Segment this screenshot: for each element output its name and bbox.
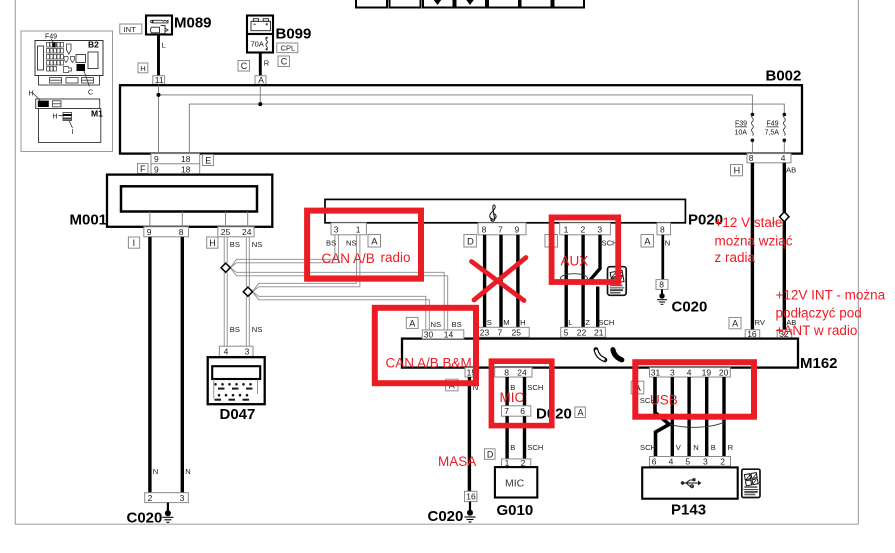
svg-text:NS: NS: [431, 320, 442, 329]
svg-text:NS: NS: [346, 238, 357, 247]
svg-text:AUX: AUX: [561, 254, 589, 269]
svg-text:8: 8: [482, 224, 487, 234]
svg-text:C: C: [281, 57, 288, 67]
svg-text:30: 30: [424, 329, 434, 339]
svg-text:podłączyć pod: podłączyć pod: [776, 306, 862, 321]
svg-text:A: A: [371, 236, 378, 247]
svg-text:D: D: [487, 449, 494, 459]
svg-text:N: N: [665, 238, 670, 247]
svg-text:+12V INT - można: +12V INT - można: [776, 288, 886, 303]
svg-text:5: 5: [564, 328, 569, 338]
svg-text:C020: C020: [672, 299, 708, 316]
svg-text:7: 7: [498, 224, 503, 234]
svg-text:BS: BS: [326, 238, 336, 247]
svg-text:14: 14: [444, 329, 454, 339]
svg-text:8: 8: [659, 280, 664, 290]
svg-text:R: R: [264, 59, 270, 68]
svg-text:L: L: [162, 41, 166, 50]
svg-text:B2: B2: [88, 40, 99, 50]
svg-text:8: 8: [660, 224, 665, 234]
svg-text:3: 3: [180, 493, 185, 503]
svg-text:BS: BS: [230, 240, 240, 249]
svg-text:NS: NS: [252, 240, 263, 249]
svg-text:C: C: [88, 90, 93, 97]
svg-text:4: 4: [224, 347, 229, 357]
svg-text:MIC: MIC: [505, 478, 525, 490]
svg-text:A: A: [258, 75, 264, 85]
svg-text:M1: M1: [91, 109, 103, 119]
svg-text:C: C: [241, 61, 248, 71]
svg-text:31: 31: [651, 367, 661, 377]
svg-text:H: H: [140, 64, 145, 73]
svg-text:B: B: [510, 443, 515, 452]
svg-text:18: 18: [181, 154, 191, 164]
svg-text:CPL: CPL: [281, 44, 296, 53]
svg-text:21: 21: [594, 328, 604, 338]
svg-text:4: 4: [781, 153, 786, 163]
svg-text:SCH: SCH: [598, 318, 614, 327]
svg-text:+ANT w radio: +ANT w radio: [776, 323, 858, 338]
svg-text:22: 22: [577, 328, 587, 338]
svg-text:SCH: SCH: [527, 443, 543, 452]
svg-text:BS: BS: [452, 320, 462, 329]
svg-text:N: N: [153, 467, 158, 476]
svg-text:H: H: [29, 91, 34, 98]
svg-text:18: 18: [181, 164, 191, 174]
svg-text:11: 11: [155, 75, 164, 85]
svg-text:E: E: [205, 155, 211, 165]
svg-text:9: 9: [515, 224, 520, 234]
svg-text:3: 3: [703, 456, 708, 466]
svg-text:I: I: [72, 129, 74, 136]
svg-text:70A: 70A: [251, 39, 264, 48]
svg-text:M162: M162: [800, 355, 838, 372]
svg-text:4: 4: [669, 456, 674, 466]
svg-text:F: F: [140, 164, 146, 174]
svg-text:6: 6: [652, 456, 657, 466]
svg-text:8: 8: [504, 367, 509, 377]
svg-text:1: 1: [356, 224, 361, 234]
svg-text:I: I: [133, 238, 136, 248]
svg-text:+12 V stałe: +12 V stałe: [715, 215, 783, 230]
svg-text:9: 9: [154, 164, 159, 174]
svg-text:MIC: MIC: [500, 390, 525, 405]
svg-text:2: 2: [581, 224, 586, 234]
svg-text:A: A: [732, 319, 738, 329]
svg-text:M: M: [503, 318, 509, 327]
svg-text:NS: NS: [252, 325, 263, 334]
svg-text:2: 2: [720, 456, 725, 466]
svg-text:CAN A/B B&M: CAN A/B B&M: [386, 356, 472, 371]
svg-text:A: A: [578, 408, 584, 418]
svg-text:SCH: SCH: [640, 443, 656, 452]
svg-text:RV: RV: [755, 318, 766, 327]
svg-text:CAN A/B: CAN A/B: [322, 251, 375, 266]
svg-text:7: 7: [504, 406, 509, 416]
svg-text:H: H: [209, 238, 216, 248]
svg-text:D: D: [467, 236, 474, 247]
svg-text:B099: B099: [276, 26, 312, 43]
svg-text:20: 20: [719, 367, 729, 377]
svg-text:USB: USB: [650, 393, 678, 408]
svg-text:4: 4: [687, 367, 692, 377]
svg-text:3: 3: [245, 347, 250, 357]
svg-text:H: H: [53, 114, 58, 121]
svg-text:radio: radio: [381, 250, 411, 265]
svg-text:SCH: SCH: [602, 238, 618, 247]
svg-text:Z: Z: [585, 318, 590, 327]
svg-text:25: 25: [512, 328, 522, 338]
svg-text:R: R: [728, 443, 734, 452]
svg-text:16: 16: [466, 492, 476, 502]
svg-text:F49: F49: [767, 121, 779, 128]
svg-text:SCH: SCH: [527, 383, 543, 392]
svg-text:B002: B002: [766, 68, 802, 85]
svg-text:z radia: z radia: [715, 250, 756, 265]
svg-text:24: 24: [242, 227, 252, 237]
svg-text:P143: P143: [671, 502, 706, 519]
svg-text:19: 19: [702, 367, 712, 377]
svg-text:25: 25: [221, 227, 231, 237]
svg-text:G010: G010: [497, 502, 534, 519]
svg-text:9: 9: [154, 154, 159, 164]
svg-text:6: 6: [520, 406, 525, 416]
svg-text:3: 3: [334, 224, 339, 234]
svg-text:10A: 10A: [735, 130, 748, 137]
svg-text:23: 23: [480, 328, 490, 338]
svg-text:BS: BS: [230, 325, 240, 334]
svg-text:C020: C020: [428, 508, 464, 525]
svg-text:C020: C020: [127, 510, 163, 527]
svg-text:9: 9: [147, 227, 152, 237]
svg-text:H: H: [520, 318, 525, 327]
svg-text:B: B: [711, 443, 716, 452]
svg-text:N: N: [693, 443, 698, 452]
svg-text:7: 7: [498, 328, 503, 338]
svg-text:3: 3: [670, 367, 675, 377]
svg-text:N: N: [185, 467, 190, 476]
svg-text:A: A: [644, 236, 651, 247]
svg-text:S: S: [487, 318, 492, 327]
svg-text:D047: D047: [220, 406, 256, 423]
svg-text:1: 1: [564, 224, 569, 234]
svg-text:INT: INT: [124, 25, 137, 34]
svg-text:3: 3: [597, 224, 602, 234]
svg-text:M001: M001: [70, 212, 108, 229]
svg-text:można wziąć: można wziąć: [715, 234, 793, 249]
svg-text:M089: M089: [174, 15, 212, 32]
svg-text:F39: F39: [735, 121, 747, 128]
svg-text:AB: AB: [786, 166, 796, 175]
svg-text:7,5A: 7,5A: [765, 130, 780, 137]
svg-text:5: 5: [685, 456, 690, 466]
svg-text:8: 8: [749, 153, 754, 163]
svg-text:8: 8: [179, 227, 184, 237]
svg-text:A: A: [409, 318, 415, 328]
svg-text:24: 24: [517, 367, 527, 377]
svg-text:MASA: MASA: [438, 454, 476, 469]
svg-text:2: 2: [148, 493, 153, 503]
svg-text:H: H: [734, 166, 741, 176]
svg-text:L: L: [568, 318, 572, 327]
